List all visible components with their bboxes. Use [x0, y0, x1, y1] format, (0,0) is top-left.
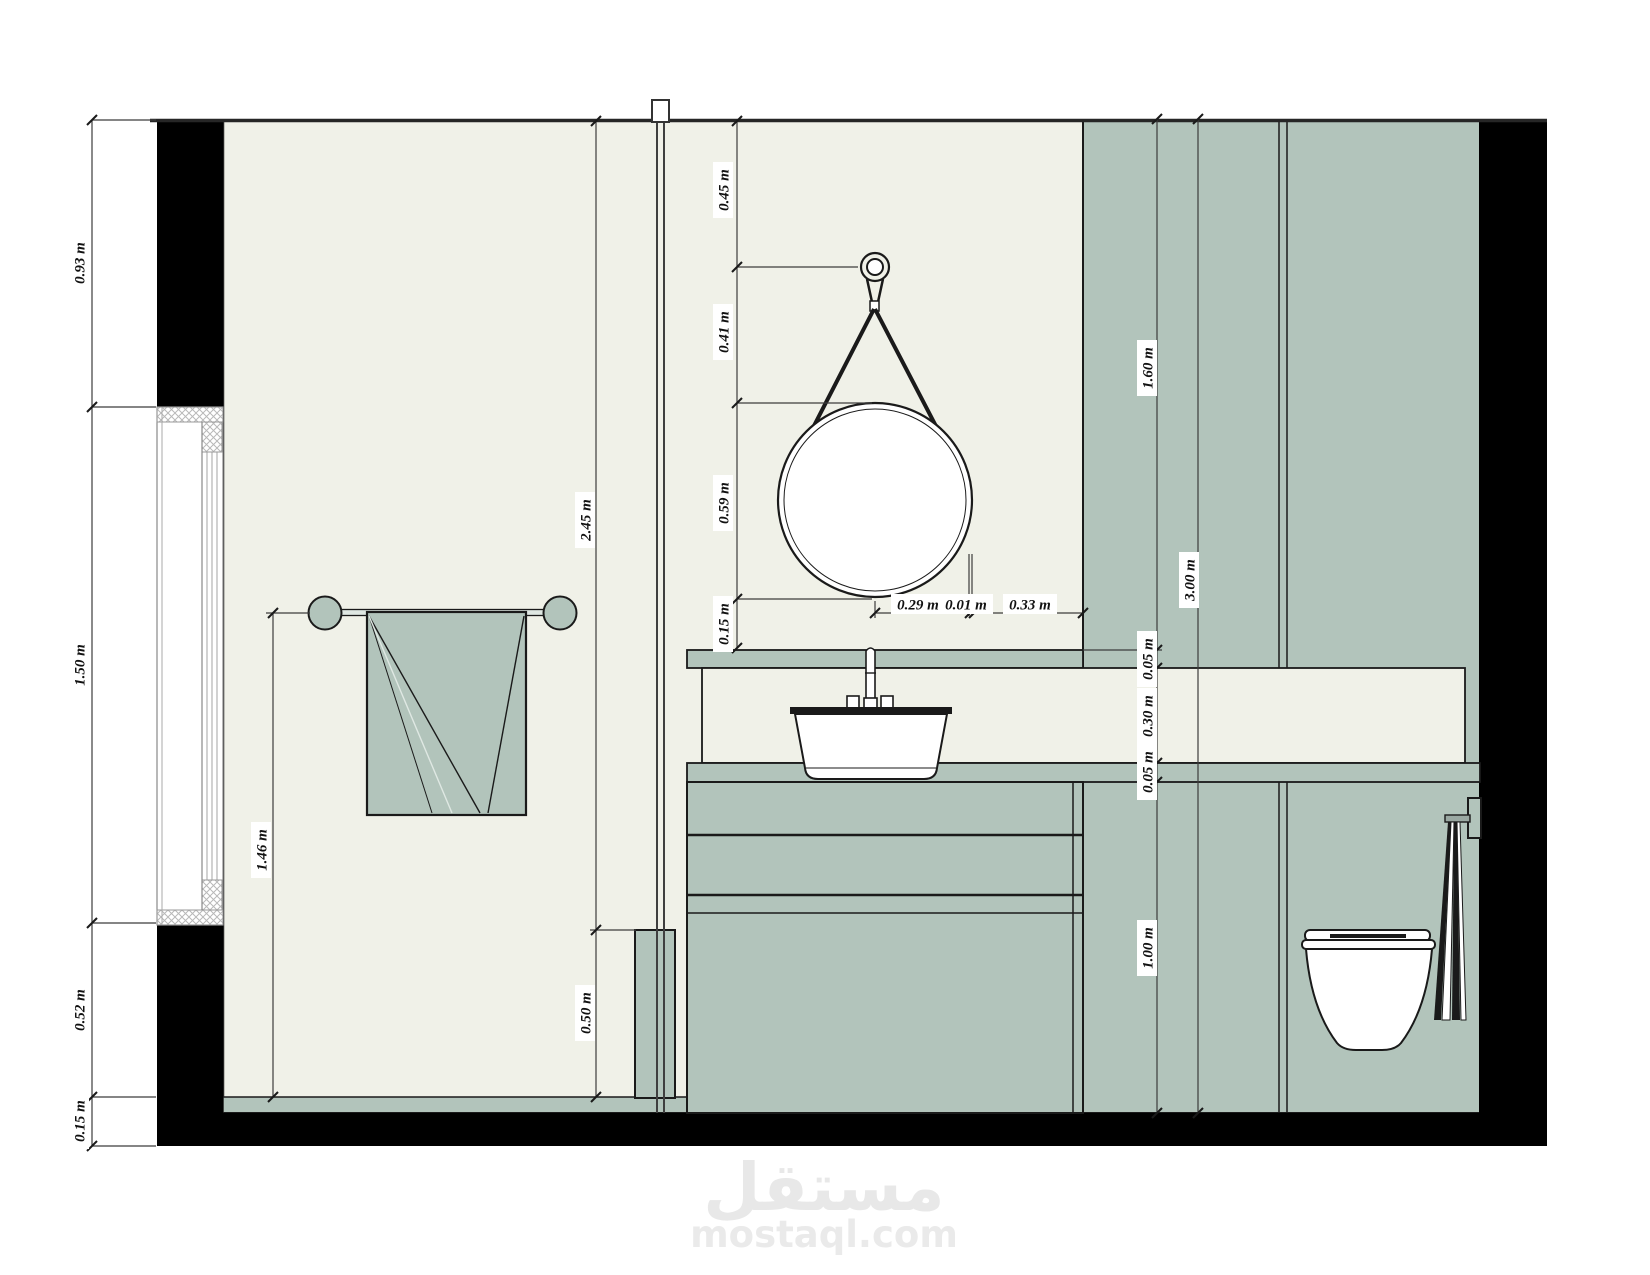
dim-label-group: 0.50 m	[575, 985, 595, 1041]
window-base-block	[202, 880, 222, 910]
dim-label: 1.60 m	[1140, 347, 1156, 389]
window-head-block	[202, 422, 222, 452]
towel-bar-end-right	[544, 597, 577, 630]
watermark: مستقل mostaql.com	[690, 1149, 958, 1256]
left-wall-upper	[157, 120, 223, 407]
faucet-spout	[866, 648, 875, 700]
dim-label: 0.29 m	[897, 597, 939, 613]
dim-label-group: 1.50 m	[69, 637, 89, 693]
dim-label-group: 0.93 m	[69, 235, 89, 291]
dim-label: 1.00 m	[1140, 927, 1156, 969]
floor-slab	[223, 1113, 1547, 1146]
dim-label-group: 0.52 m	[69, 982, 89, 1038]
dim-label-group: 0.15 m	[713, 596, 733, 652]
dim-label: 2.45 m	[578, 499, 594, 542]
window-frame	[157, 407, 223, 925]
basin-rim	[790, 707, 952, 714]
counter-top-band	[687, 650, 1083, 668]
dim-label: 0.50 m	[578, 992, 594, 1034]
dim-label-group: 0.45 m	[713, 162, 733, 218]
dim-label: 3.00 m	[1182, 559, 1198, 602]
watermark-domain: mostaql.com	[690, 1213, 958, 1256]
dim-label: 0.41 m	[716, 311, 732, 353]
shower-half-wall	[635, 930, 675, 1098]
right-wall	[1479, 120, 1547, 1146]
dim-label-group: 0.33 m	[1003, 594, 1057, 614]
hanging-towel	[367, 612, 526, 815]
dim-label: 0.59 m	[716, 482, 732, 524]
dim-label-group: 0.30 m	[1137, 688, 1157, 744]
dim-label: 0.15 m	[72, 1100, 88, 1142]
dim-label: 1.46 m	[254, 829, 270, 871]
dim-label: 0.01 m	[945, 597, 987, 613]
towel-bar-end-left	[309, 597, 342, 630]
dim-label-group: 0.01 m	[939, 594, 993, 614]
faucet-base	[864, 698, 877, 708]
dim-label: 0.45 m	[716, 169, 732, 211]
hanger-arm	[1445, 815, 1470, 822]
dim-label-group: 1.46 m	[251, 822, 271, 878]
basin-body	[795, 714, 947, 779]
mirror-glass	[784, 409, 966, 591]
dim-label: 0.15 m	[716, 603, 732, 645]
dim-label-group: 0.29 m	[891, 594, 945, 614]
faucet-handle-right	[881, 696, 893, 708]
dim-label: 0.30 m	[1140, 695, 1156, 737]
toilet-seat	[1302, 940, 1435, 949]
dim-label-group: 0.41 m	[713, 304, 733, 360]
dim-label-group: 0.05 m	[1137, 744, 1157, 800]
toilet-lid-shadow	[1330, 934, 1406, 938]
dim-label-group: 1.00 m	[1137, 920, 1157, 976]
dim-label-group: 0.59 m	[713, 475, 733, 531]
dim-label-group: 0.15 m	[69, 1093, 89, 1149]
dim-label-group: 3.00 m	[1179, 552, 1199, 608]
dim-label-group: 1.60 m	[1137, 340, 1157, 396]
dim-label-group: 0.05 m	[1137, 631, 1157, 687]
vanity-cabinet	[687, 782, 1083, 1113]
dim-label: 0.05 m	[1140, 751, 1156, 793]
window	[157, 407, 223, 925]
window-lintel-hatch	[157, 407, 223, 422]
dim-label: 0.93 m	[72, 242, 88, 284]
dim-label-group: 2.45 m	[575, 492, 595, 548]
mirror-hook-ring-inner	[867, 259, 883, 275]
dim-label: 0.52 m	[72, 989, 88, 1031]
drawing-svg: 0.93 m 1.50 m 0.52 m 0.15 m 2.45 m 0.50 …	[0, 0, 1650, 1275]
glass-panel-top-cap	[652, 100, 669, 122]
elevation-drawing: 0.93 m 1.50 m 0.52 m 0.15 m 2.45 m 0.50 …	[0, 0, 1650, 1275]
faucet-handle-left	[847, 696, 859, 708]
window-sill-hatch	[157, 910, 223, 925]
dim-label: 1.50 m	[72, 644, 88, 686]
left-wall-lower	[157, 925, 223, 1146]
dim-label: 0.05 m	[1140, 638, 1156, 680]
dim-label: 0.33 m	[1009, 597, 1051, 613]
floor-finish-strip	[223, 1097, 687, 1113]
